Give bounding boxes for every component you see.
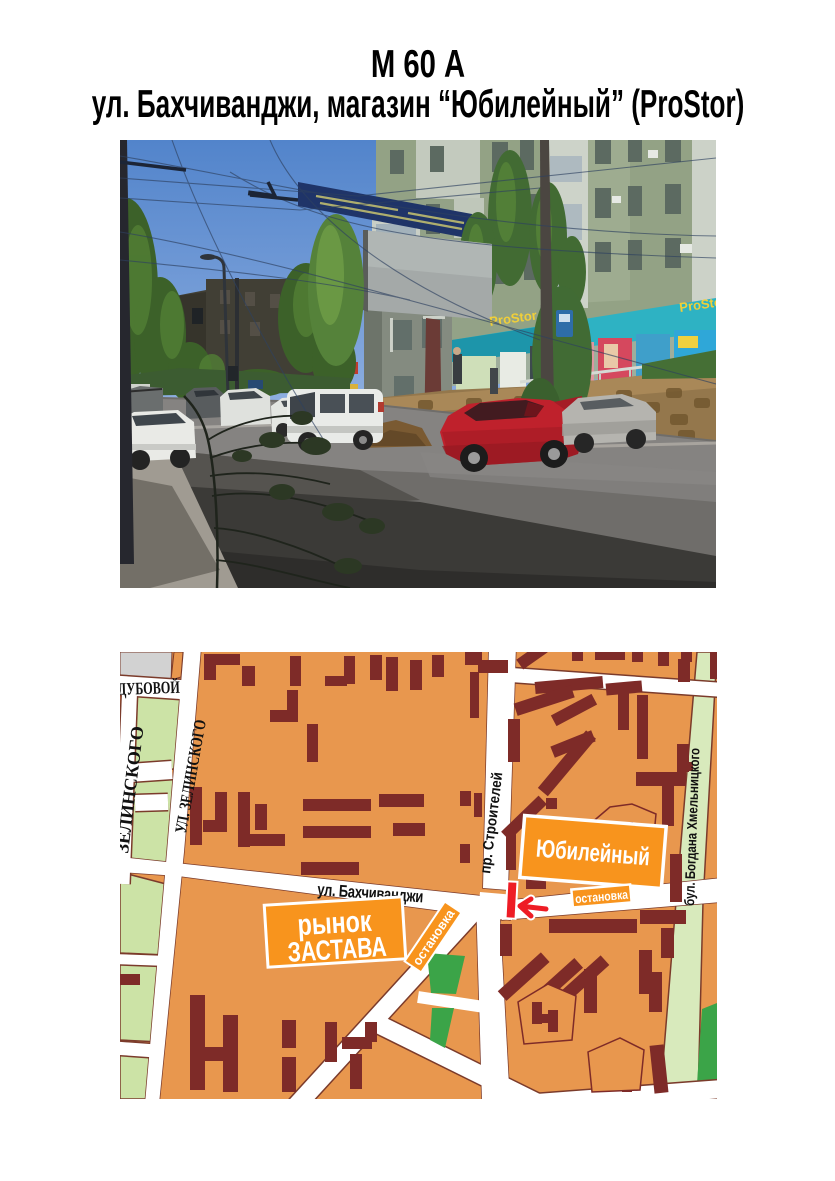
svg-text:ЗАСТАВА: ЗАСТАВА	[287, 931, 388, 968]
svg-text:ДУБОВОЙ: ДУБОВОЙ	[120, 677, 180, 699]
